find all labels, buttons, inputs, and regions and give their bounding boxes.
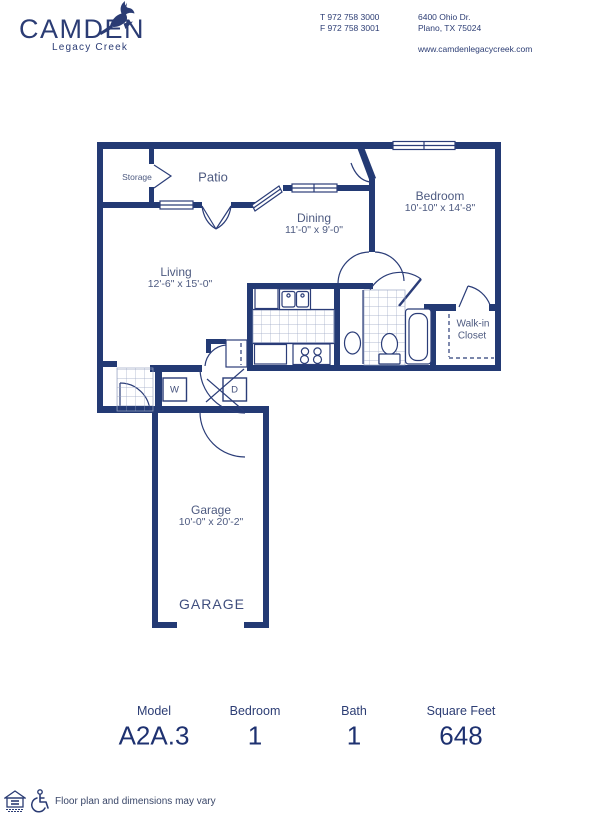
walkin-closet-label-1: Walk-in xyxy=(457,319,490,330)
summary-bath-label: Bath xyxy=(341,704,367,718)
diagonal-window xyxy=(252,186,282,211)
living-label: Living xyxy=(160,265,191,279)
bathtub xyxy=(406,309,432,364)
bedroom-window xyxy=(393,142,455,150)
floorplan-sheet: CAMDEN Legacy Creek T 972 758 3000 F 972… xyxy=(0,0,600,816)
bathroom-vanity xyxy=(345,290,364,364)
dining-label: Dining xyxy=(297,211,331,225)
bedroom-dimensions: 10'-10" x 14'-8" xyxy=(405,202,475,214)
summary-sqft-value: 648 xyxy=(439,721,482,752)
summary-sqft-label: Square Feet xyxy=(427,704,496,718)
dining-window xyxy=(292,184,337,192)
storage-door xyxy=(154,165,171,188)
summary-bath-value: 1 xyxy=(347,721,361,752)
kitchen-tile-floor xyxy=(253,310,334,343)
kitchen-sink xyxy=(280,289,311,310)
garage-dimensions: 10'-0" x 20'-2" xyxy=(179,516,244,528)
dining-dimensions: 11'-0" x 9'-0" xyxy=(285,224,343,236)
walkin-closet-label-2: Closet xyxy=(458,331,486,342)
equal-housing-icon xyxy=(4,790,26,812)
disclaimer-text: Floor plan and dimensions may vary xyxy=(55,796,216,807)
patio-label: Patio xyxy=(198,170,228,185)
bedroom-label: Bedroom xyxy=(416,189,465,203)
summary-model-value: A2A.3 xyxy=(119,721,190,752)
dryer-label: D xyxy=(231,384,238,395)
summary-model-label: Model xyxy=(137,704,171,718)
washer-label: W xyxy=(170,384,179,395)
living-dimensions: 12'-6" x 15'-0" xyxy=(148,278,213,290)
garage-big-label: GARAGE xyxy=(179,596,245,612)
patio-door xyxy=(202,206,231,229)
storage-label: Storage xyxy=(122,172,152,182)
summary-bedroom-value: 1 xyxy=(248,721,262,752)
closet-door xyxy=(459,286,490,307)
entry-tile-floor xyxy=(117,368,153,411)
pantry-closet xyxy=(205,340,247,367)
summary-bedroom-label: Bedroom xyxy=(230,704,281,718)
floorplan-drawing xyxy=(0,0,600,816)
patio-window xyxy=(160,201,193,209)
wheelchair-accessible-icon xyxy=(29,789,51,813)
stove xyxy=(293,344,330,365)
garage-label: Garage xyxy=(191,503,231,517)
